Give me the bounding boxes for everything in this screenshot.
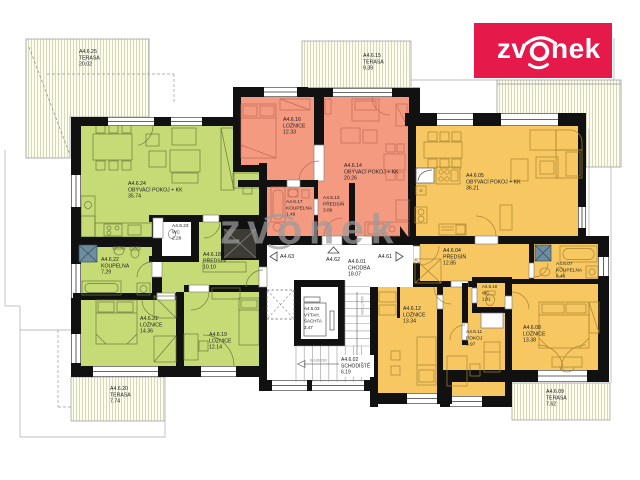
svg-text:10x177/280: 10x177/280: [360, 296, 364, 315]
svg-text:zvonek: zvonek: [220, 206, 400, 253]
svg-text:A4.61: A4.61: [378, 254, 392, 260]
svg-text:A4.62: A4.62: [326, 257, 340, 263]
svg-text:nek: nek: [551, 33, 601, 64]
svg-text:A4.63: A4.63: [280, 254, 294, 260]
svg-text:8x180/280: 8x180/280: [310, 359, 327, 363]
svg-text:zv: zv: [497, 33, 528, 64]
